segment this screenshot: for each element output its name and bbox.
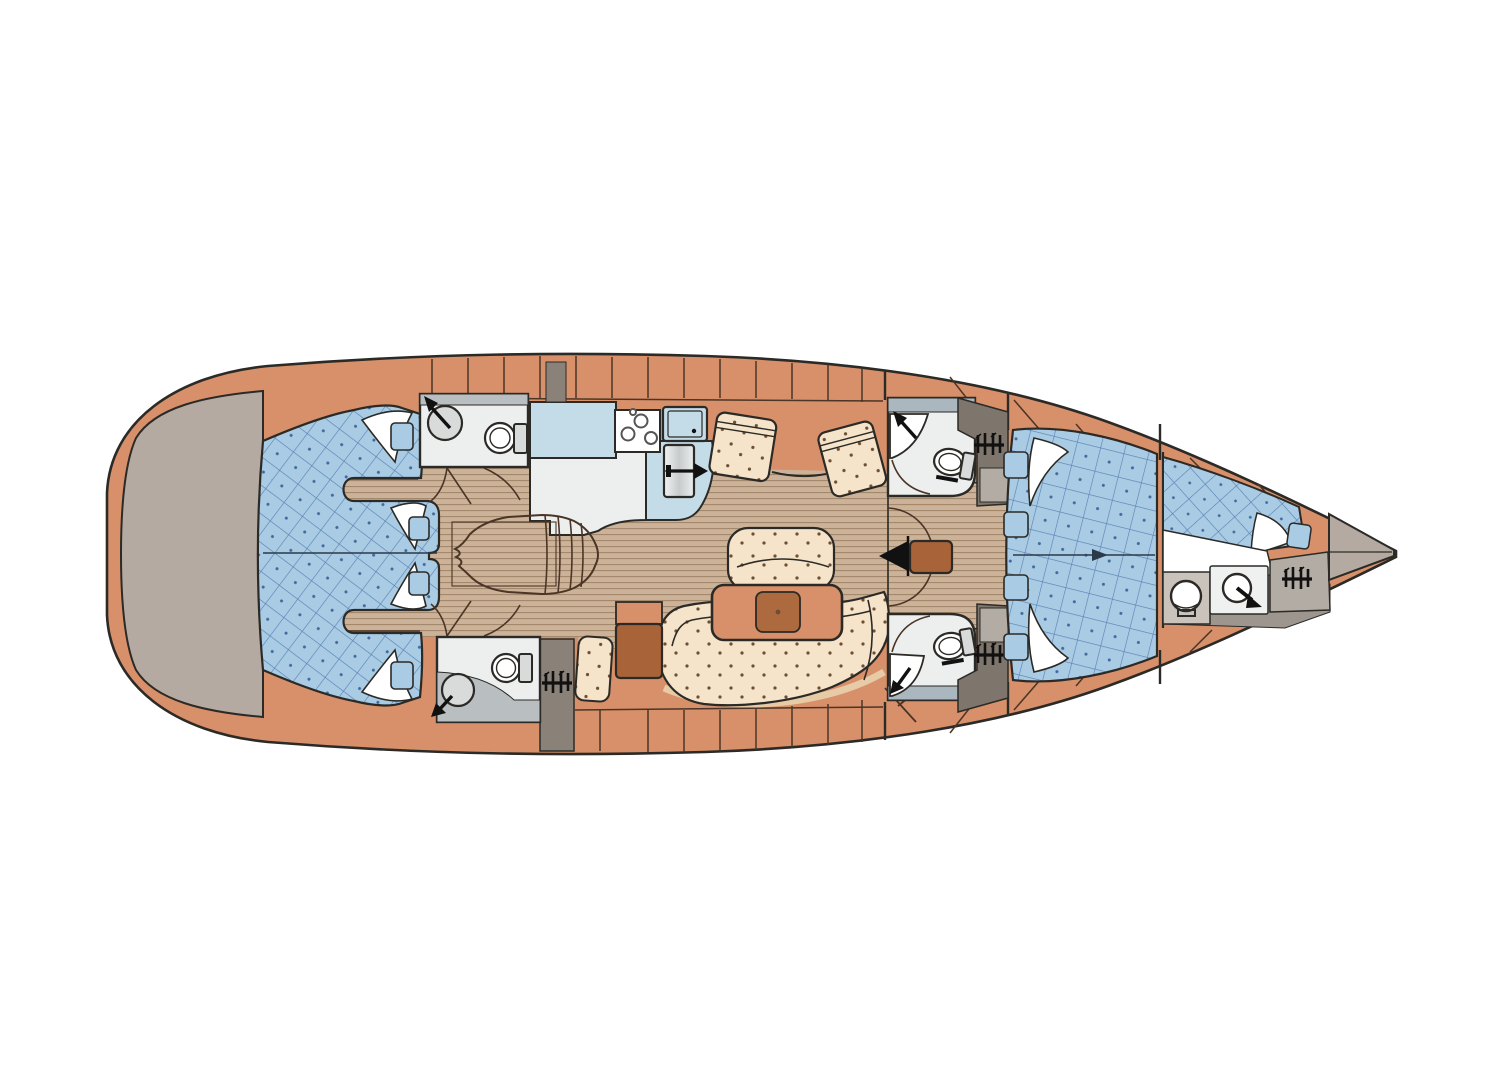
salon-settee-upper-aft bbox=[708, 412, 777, 483]
yacht-floor-plan bbox=[0, 0, 1492, 1080]
aft-berths-quilted bbox=[258, 406, 439, 706]
berth-step-box bbox=[1004, 512, 1028, 537]
sink-drain-icon bbox=[692, 429, 696, 433]
berth-shelf-box bbox=[409, 517, 429, 540]
chart-table bbox=[616, 624, 662, 678]
sink-icon bbox=[663, 407, 707, 441]
deck-locker bbox=[546, 362, 566, 402]
toilet-icon bbox=[931, 446, 976, 484]
berth-shelf-box bbox=[391, 423, 413, 450]
berth-step-box bbox=[1004, 575, 1028, 600]
owner-cabin bbox=[1004, 429, 1157, 682]
transom-platform bbox=[121, 391, 263, 717]
floor-plan-canvas bbox=[0, 0, 1492, 1080]
berth-shelf-box bbox=[1286, 523, 1311, 550]
nav-instrument-panel bbox=[616, 602, 662, 624]
aft-hanging-locker bbox=[540, 639, 574, 751]
nav-seat bbox=[575, 636, 613, 702]
berth-step-box bbox=[1004, 634, 1028, 660]
berth-shelf-box bbox=[409, 572, 429, 595]
table-dot bbox=[776, 610, 781, 615]
berth-shelf-box bbox=[391, 662, 413, 689]
toilet-tank-icon bbox=[514, 424, 527, 453]
aft-head-starboard bbox=[420, 394, 528, 467]
washbasin-icon bbox=[1171, 581, 1201, 611]
aft-cabins bbox=[258, 406, 439, 706]
aft-head-port bbox=[431, 637, 540, 722]
galley-counter bbox=[530, 402, 616, 458]
toilet-tank-icon bbox=[519, 654, 532, 682]
galley bbox=[530, 402, 714, 535]
mast-table bbox=[910, 541, 952, 573]
berth-step-box bbox=[1004, 452, 1028, 478]
